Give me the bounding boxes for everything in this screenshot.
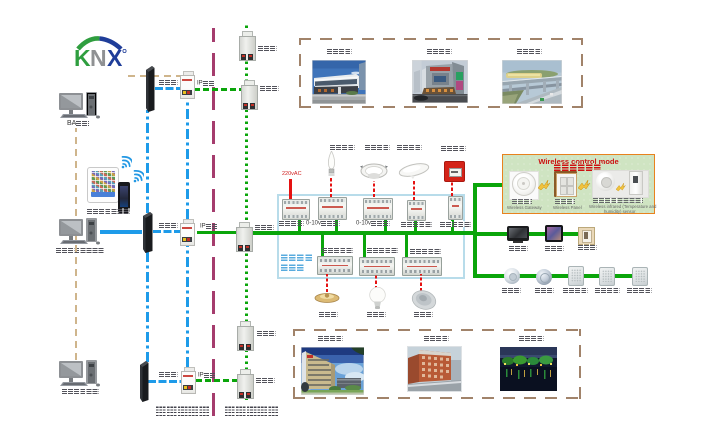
svg-text:N: N (90, 45, 107, 68)
svg-text:K: K (74, 45, 91, 68)
svg-text:X: X (107, 45, 123, 68)
